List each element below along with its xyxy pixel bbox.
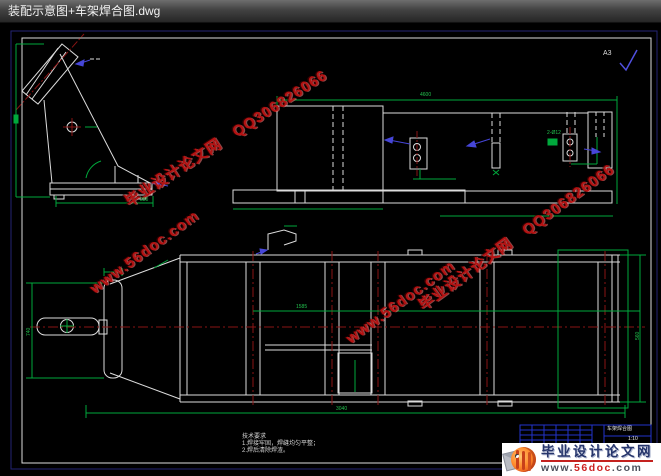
notes-item: 2.焊后清除焊渣。 — [242, 448, 319, 455]
hook-detail — [268, 226, 297, 250]
dim-label: 740 — [27, 328, 32, 336]
site-url: www.56doc.com — [541, 463, 661, 474]
sheet-size-mark: A3 — [603, 50, 612, 57]
site-name: 毕业设计论文网 — [541, 445, 661, 459]
discus-fish-icon — [502, 444, 538, 475]
dim-label: 4600 — [420, 93, 431, 98]
dim-label: 2-Ø12 — [547, 131, 561, 136]
dim-label: 380 — [140, 198, 148, 203]
notes-title: 技术要求 — [242, 434, 319, 441]
notes-item: 1.焊接牢固，焊缝均匀平整； — [242, 441, 319, 448]
site-logo-link[interactable]: 毕业设计论文网 www.56doc.com — [502, 443, 661, 476]
dim-label: 1585 — [296, 305, 307, 310]
technical-notes: 技术要求 1.焊接牢固，焊缝均匀平整； 2.焊后清除焊渣。 — [242, 434, 319, 455]
cad-canvas — [0, 0, 661, 476]
dim-label: 560 — [636, 332, 641, 340]
check-mark-icon — [620, 50, 637, 70]
dim-label: 3040 — [336, 407, 347, 412]
title-block-scale: 1:10 — [628, 437, 638, 442]
title-block-drawing-name: 车架焊合图 — [607, 427, 632, 432]
app-window: 装配示意图+车架焊合图.dwg — [0, 0, 661, 476]
